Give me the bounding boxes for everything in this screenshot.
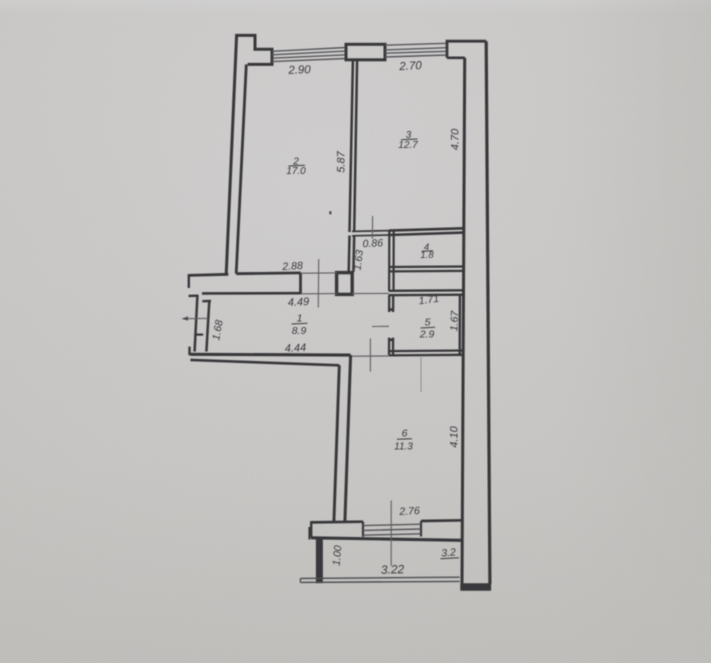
svg-text:5.87: 5.87 [336,150,348,172]
svg-text:4.10: 4.10 [449,425,461,447]
svg-text:1.63: 1.63 [352,249,366,271]
svg-text:17.0: 17.0 [286,166,306,177]
svg-text:6: 6 [402,428,408,440]
svg-text:2.9: 2.9 [419,329,435,341]
svg-text:2.76: 2.76 [398,505,420,518]
svg-text:4.70: 4.70 [450,128,462,150]
svg-text:4.44: 4.44 [285,342,307,355]
svg-text:12.7: 12.7 [398,140,418,151]
svg-text:1.71: 1.71 [418,293,440,307]
svg-text:0.86: 0.86 [362,237,383,250]
svg-text:1.67: 1.67 [448,309,461,331]
svg-text:11.3: 11.3 [394,442,413,453]
svg-text:5: 5 [425,317,431,329]
svg-text:3.22: 3.22 [381,562,405,577]
svg-text:4.49: 4.49 [288,296,310,309]
svg-text:1.8: 1.8 [420,250,434,261]
svg-text:1: 1 [297,313,303,325]
svg-text:2.90: 2.90 [287,64,311,77]
svg-text:2.70: 2.70 [398,60,423,73]
svg-text:8.9: 8.9 [292,325,307,337]
svg-text:2.88: 2.88 [281,260,303,273]
svg-text:1.00: 1.00 [331,545,345,567]
